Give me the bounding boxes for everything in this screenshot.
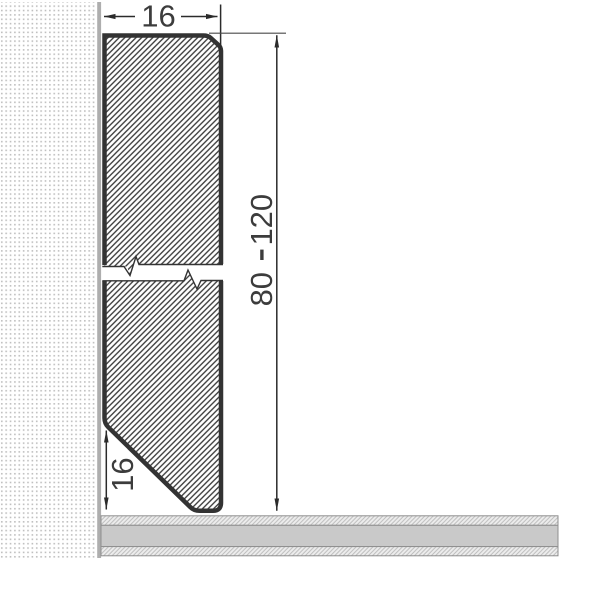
svg-text:120: 120: [244, 194, 279, 246]
svg-text:16: 16: [105, 457, 140, 491]
svg-text:16: 16: [141, 0, 175, 34]
svg-text:80: 80: [244, 272, 279, 306]
